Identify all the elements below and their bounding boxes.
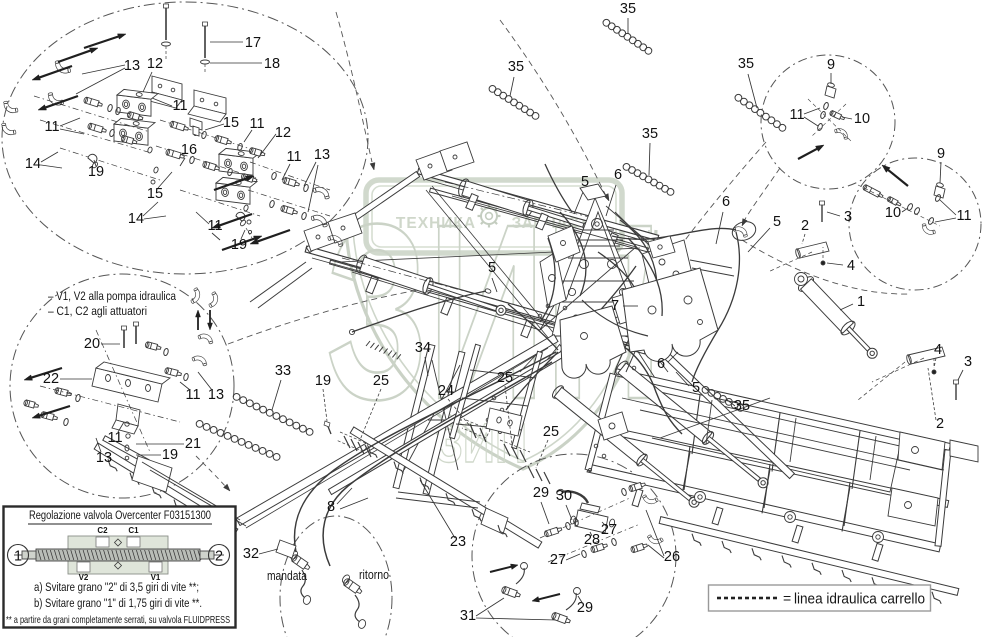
svg-text:13: 13	[208, 387, 224, 403]
svg-text:Regolazione valvola Overcenter: Regolazione valvola Overcenter F03151300	[29, 508, 211, 522]
svg-text:30: 30	[556, 488, 572, 504]
svg-text:10: 10	[885, 205, 901, 221]
svg-text:10: 10	[854, 111, 870, 127]
svg-text:22: 22	[43, 371, 59, 387]
svg-text:1: 1	[14, 549, 22, 565]
svg-text:17: 17	[245, 35, 261, 51]
svg-text:13: 13	[96, 450, 112, 466]
svg-text:14: 14	[25, 156, 41, 172]
svg-text:12: 12	[275, 125, 291, 141]
svg-text:34: 34	[415, 340, 431, 356]
svg-text:19: 19	[231, 237, 247, 253]
svg-text:35: 35	[734, 398, 750, 414]
svg-text:C1: C1	[128, 526, 139, 535]
svg-text:5: 5	[773, 214, 781, 230]
svg-text:5: 5	[581, 174, 589, 190]
svg-text:b) Svitare grano "1" di 1,75 g: b) Svitare grano "1" di 1,75 giri di vit…	[34, 596, 202, 610]
svg-text:– C1, C2 agli attuatori: – C1, C2 agli attuatori	[48, 304, 147, 318]
svg-text:– V1, V2 alla pompa idraulica: – V1, V2 alla pompa idraulica	[48, 289, 176, 303]
svg-text:20: 20	[84, 336, 100, 352]
svg-text:9: 9	[827, 57, 835, 73]
svg-text:35: 35	[508, 59, 524, 75]
svg-text:29: 29	[533, 485, 549, 501]
svg-text:2: 2	[936, 416, 944, 432]
svg-text:35: 35	[642, 126, 658, 142]
svg-text:32: 32	[243, 546, 259, 562]
svg-text:linea idraulica carrello: linea idraulica carrello	[794, 592, 925, 608]
svg-text:5: 5	[692, 380, 700, 396]
svg-text:4: 4	[847, 258, 855, 274]
svg-text:28: 28	[584, 532, 600, 548]
svg-text:31: 31	[460, 608, 476, 624]
svg-text:6: 6	[657, 356, 665, 372]
svg-text:25: 25	[543, 424, 559, 440]
svg-text:35: 35	[620, 1, 636, 17]
svg-text:13: 13	[124, 58, 140, 74]
svg-text:ritorno: ritorno	[359, 568, 389, 582]
svg-text:11: 11	[44, 119, 59, 135]
svg-text:4: 4	[934, 342, 942, 358]
svg-text:11: 11	[286, 149, 301, 165]
svg-text:6: 6	[722, 194, 730, 210]
svg-text:2: 2	[801, 218, 809, 234]
svg-text:11: 11	[207, 218, 222, 234]
svg-text:6: 6	[614, 167, 622, 183]
svg-text:27: 27	[601, 522, 617, 538]
svg-text:11: 11	[249, 116, 264, 132]
svg-text:2: 2	[215, 549, 223, 565]
svg-text:25: 25	[497, 370, 513, 386]
svg-text:27: 27	[550, 552, 566, 568]
svg-text:11: 11	[789, 107, 804, 123]
svg-text:19: 19	[315, 373, 331, 389]
svg-text:5: 5	[488, 260, 496, 276]
svg-text:15: 15	[223, 115, 239, 131]
svg-text:19: 19	[162, 447, 178, 463]
svg-text:19: 19	[88, 164, 104, 180]
svg-text:** a partire da grani completa: ** a partire da grani completamente serr…	[6, 615, 230, 626]
svg-text:mandata: mandata	[267, 569, 307, 583]
svg-text:1: 1	[857, 294, 865, 310]
svg-text:12: 12	[147, 56, 163, 72]
svg-text:25: 25	[373, 373, 389, 389]
svg-text:23: 23	[450, 534, 466, 550]
svg-text:11: 11	[107, 430, 122, 446]
svg-text:7: 7	[611, 298, 619, 314]
svg-text:8: 8	[327, 499, 335, 515]
svg-text:14: 14	[128, 211, 144, 227]
svg-text:29: 29	[577, 600, 593, 616]
svg-text:3: 3	[964, 354, 972, 370]
svg-text:18: 18	[264, 56, 280, 72]
svg-text:24: 24	[438, 383, 454, 399]
svg-text:16: 16	[181, 142, 197, 158]
svg-text:3: 3	[844, 209, 852, 225]
svg-text:33: 33	[275, 363, 291, 379]
svg-text:11: 11	[185, 387, 200, 403]
svg-text:13: 13	[314, 147, 330, 163]
svg-text:21: 21	[185, 436, 201, 452]
svg-text:11: 11	[172, 98, 187, 114]
svg-text:15: 15	[147, 186, 163, 202]
svg-text:=: =	[783, 590, 791, 606]
svg-text:a) Svitare grano "2" di 3,5 gi: a) Svitare grano "2" di 3,5 giri di vite…	[34, 580, 199, 594]
svg-text:9: 9	[937, 146, 945, 162]
svg-text:C2: C2	[97, 526, 108, 535]
svg-text:35: 35	[738, 56, 754, 72]
svg-text:26: 26	[664, 549, 680, 565]
svg-text:11: 11	[956, 208, 971, 224]
